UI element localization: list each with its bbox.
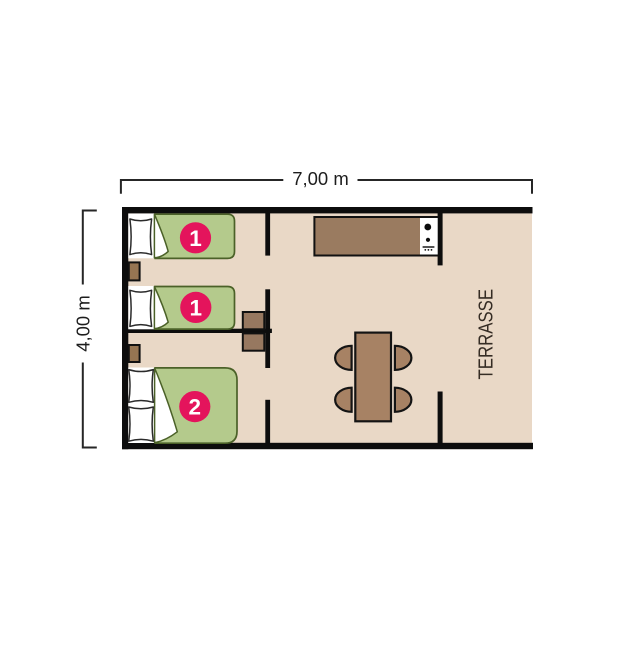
svg-text:7,00 m: 7,00 m [292, 168, 349, 189]
svg-text:2: 2 [189, 395, 202, 420]
svg-text:TERRASSE: TERRASSE [474, 289, 497, 380]
svg-text:4,00 m: 4,00 m [72, 295, 93, 352]
svg-text:1: 1 [189, 226, 202, 251]
svg-text:1: 1 [190, 295, 203, 320]
